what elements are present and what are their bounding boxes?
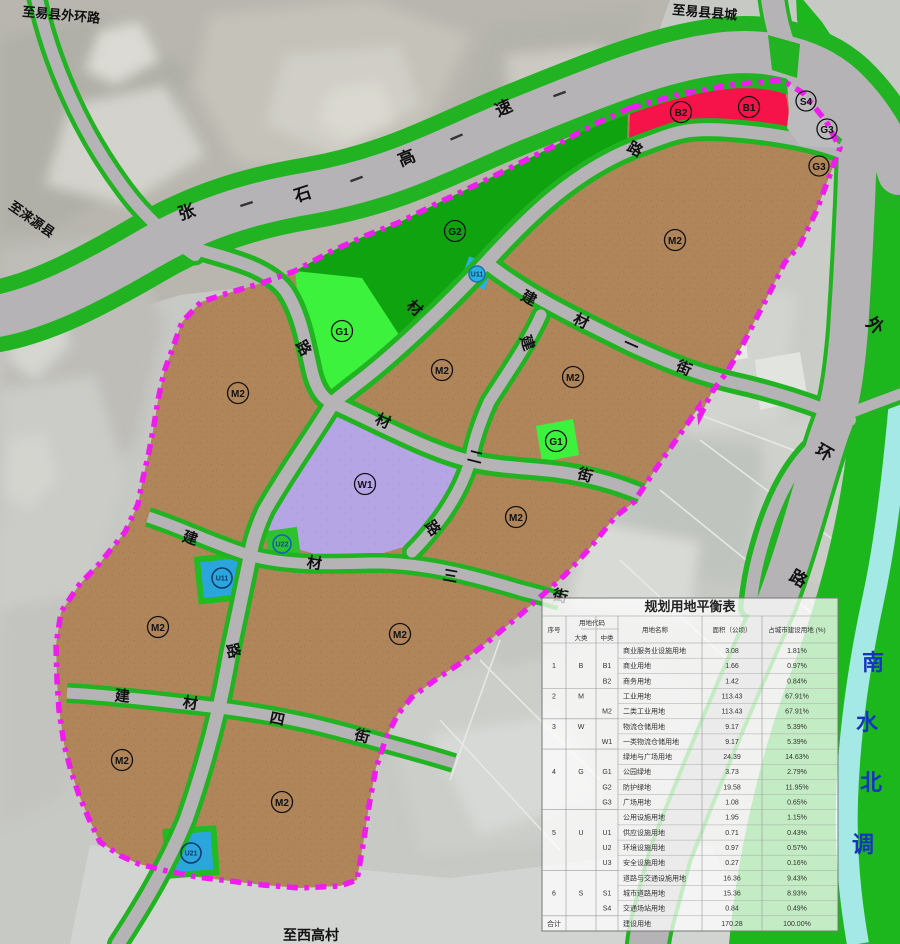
svg-text:占城市建设用地 (%): 占城市建设用地 (%) bbox=[768, 625, 825, 634]
svg-text:S4: S4 bbox=[800, 97, 813, 108]
svg-text:0.97: 0.97 bbox=[725, 845, 739, 852]
svg-text:U11: U11 bbox=[216, 576, 229, 583]
svg-text:物流仓储用地: 物流仓储用地 bbox=[623, 722, 665, 731]
svg-text:水: 水 bbox=[856, 710, 879, 735]
svg-text:公园绿地: 公园绿地 bbox=[623, 767, 651, 776]
svg-text:67.91%: 67.91% bbox=[785, 709, 809, 716]
svg-text:M2: M2 bbox=[275, 798, 289, 809]
svg-text:9.17: 9.17 bbox=[725, 724, 739, 731]
svg-text:南: 南 bbox=[862, 650, 884, 675]
svg-text:0.65%: 0.65% bbox=[787, 800, 807, 807]
svg-text:环境设施用地: 环境设施用地 bbox=[623, 843, 665, 852]
svg-text:序号: 序号 bbox=[548, 625, 562, 634]
svg-text:1.08: 1.08 bbox=[725, 800, 739, 807]
svg-text:24.39: 24.39 bbox=[723, 754, 741, 761]
svg-text:1.95: 1.95 bbox=[725, 815, 739, 822]
svg-text:0.84%: 0.84% bbox=[787, 678, 807, 685]
svg-text:B1: B1 bbox=[603, 663, 612, 670]
svg-text:U1: U1 bbox=[603, 830, 612, 837]
svg-text:M: M bbox=[578, 694, 584, 701]
svg-text:9.17: 9.17 bbox=[725, 739, 739, 746]
svg-text:0.27: 0.27 bbox=[725, 860, 739, 867]
svg-text:1.42: 1.42 bbox=[725, 678, 739, 685]
svg-text:1.66: 1.66 bbox=[725, 663, 739, 670]
svg-text:M2: M2 bbox=[231, 389, 245, 400]
svg-text:G2: G2 bbox=[602, 784, 611, 791]
svg-text:5: 5 bbox=[552, 830, 556, 837]
svg-text:工业用地: 工业用地 bbox=[623, 692, 651, 701]
svg-text:规划用地平衡表: 规划用地平衡表 bbox=[644, 599, 736, 614]
svg-text:5.39%: 5.39% bbox=[787, 739, 807, 746]
svg-text:100.00%: 100.00% bbox=[783, 921, 811, 928]
svg-text:商业用地: 商业用地 bbox=[623, 661, 651, 670]
svg-text:U22: U22 bbox=[276, 542, 289, 549]
svg-text:调: 调 bbox=[852, 832, 874, 857]
svg-text:北: 北 bbox=[860, 770, 882, 795]
svg-text:G1: G1 bbox=[602, 769, 611, 776]
svg-text:二类工业用地: 二类工业用地 bbox=[623, 707, 665, 716]
svg-text:道路与交通设施用地: 道路与交通设施用地 bbox=[623, 873, 686, 882]
svg-text:1.81%: 1.81% bbox=[787, 648, 807, 655]
svg-text:安全设施用地: 安全设施用地 bbox=[623, 858, 665, 867]
svg-text:6: 6 bbox=[552, 891, 556, 898]
svg-text:113.43: 113.43 bbox=[722, 709, 743, 716]
svg-text:用地代码: 用地代码 bbox=[579, 618, 606, 627]
svg-text:0.71: 0.71 bbox=[725, 830, 739, 837]
svg-text:B2: B2 bbox=[675, 108, 688, 119]
svg-text:67.91%: 67.91% bbox=[785, 694, 809, 701]
svg-text:绿地与广场用地: 绿地与广场用地 bbox=[623, 752, 672, 761]
svg-text:B: B bbox=[579, 663, 584, 670]
svg-text:170.28: 170.28 bbox=[721, 921, 743, 928]
svg-text:8.93%: 8.93% bbox=[787, 891, 807, 898]
svg-text:材: 材 bbox=[182, 693, 199, 713]
svg-text:0.49%: 0.49% bbox=[787, 906, 807, 913]
svg-text:G2: G2 bbox=[448, 227, 462, 238]
svg-text:11.95%: 11.95% bbox=[785, 784, 808, 791]
svg-text:15.36: 15.36 bbox=[723, 891, 741, 898]
svg-text:用地名称: 用地名称 bbox=[642, 625, 669, 634]
svg-text:U: U bbox=[578, 830, 583, 837]
svg-text:大类: 大类 bbox=[575, 633, 589, 642]
svg-text:3: 3 bbox=[552, 724, 556, 731]
svg-text:U2: U2 bbox=[603, 845, 612, 852]
svg-text:U3: U3 bbox=[603, 860, 612, 867]
svg-text:M2: M2 bbox=[509, 513, 523, 524]
svg-text:合计: 合计 bbox=[547, 919, 561, 928]
svg-text:M2: M2 bbox=[393, 630, 407, 641]
svg-text:G3: G3 bbox=[602, 800, 611, 807]
svg-text:G3: G3 bbox=[812, 162, 826, 173]
svg-text:建: 建 bbox=[114, 686, 132, 706]
svg-text:S4: S4 bbox=[603, 906, 612, 913]
svg-text:G3: G3 bbox=[820, 125, 834, 136]
svg-text:14.63%: 14.63% bbox=[785, 754, 809, 761]
svg-text:5.39%: 5.39% bbox=[787, 724, 807, 731]
svg-text:U21: U21 bbox=[185, 851, 198, 858]
svg-text:0.43%: 0.43% bbox=[787, 830, 807, 837]
svg-text:广场用地: 广场用地 bbox=[623, 798, 651, 807]
svg-text:供应设施用地: 供应设施用地 bbox=[623, 828, 665, 837]
svg-text:W1: W1 bbox=[602, 739, 613, 746]
svg-text:16.36: 16.36 bbox=[723, 875, 741, 882]
svg-text:0.84: 0.84 bbox=[725, 906, 739, 913]
svg-text:M2: M2 bbox=[151, 623, 165, 634]
svg-text:三: 三 bbox=[441, 567, 459, 586]
svg-text:M2: M2 bbox=[435, 366, 449, 377]
svg-text:113.43: 113.43 bbox=[722, 694, 743, 701]
svg-text:4: 4 bbox=[552, 769, 556, 776]
svg-text:一类物流仓储用地: 一类物流仓储用地 bbox=[623, 737, 679, 746]
svg-text:2.79%: 2.79% bbox=[787, 769, 807, 776]
svg-text:建设用地: 建设用地 bbox=[623, 919, 651, 928]
svg-text:B1: B1 bbox=[743, 103, 756, 114]
svg-text:M2: M2 bbox=[602, 709, 612, 716]
svg-text:M2: M2 bbox=[566, 373, 580, 384]
svg-text:0.97%: 0.97% bbox=[787, 663, 807, 670]
svg-text:0.57%: 0.57% bbox=[787, 845, 807, 852]
svg-text:3.08: 3.08 bbox=[725, 648, 739, 655]
svg-text:M2: M2 bbox=[115, 756, 129, 767]
svg-text:1.15%: 1.15% bbox=[787, 815, 807, 822]
svg-text:U11: U11 bbox=[471, 272, 484, 279]
svg-text:G1: G1 bbox=[335, 327, 349, 338]
svg-text:S1: S1 bbox=[603, 891, 612, 898]
svg-text:M2: M2 bbox=[668, 236, 682, 247]
svg-text:3.73: 3.73 bbox=[725, 769, 739, 776]
svg-text:城市道路用地: 城市道路用地 bbox=[623, 889, 665, 898]
svg-text:中类: 中类 bbox=[601, 633, 615, 642]
svg-text:W: W bbox=[578, 724, 585, 731]
svg-text:G1: G1 bbox=[549, 437, 563, 448]
svg-text:0.16%: 0.16% bbox=[787, 860, 807, 867]
svg-text:材: 材 bbox=[306, 553, 323, 573]
svg-text:S: S bbox=[579, 891, 584, 898]
svg-text:至西高村: 至西高村 bbox=[283, 927, 339, 943]
svg-text:2: 2 bbox=[552, 694, 556, 701]
svg-text:商业服务业设施用地: 商业服务业设施用地 bbox=[623, 646, 686, 655]
svg-text:防护绿地: 防护绿地 bbox=[623, 782, 651, 791]
svg-text:交通场站用地: 交通场站用地 bbox=[623, 904, 665, 913]
svg-text:19.58: 19.58 bbox=[723, 784, 741, 791]
svg-text:公用设施用地: 公用设施用地 bbox=[623, 813, 665, 822]
svg-text:商务用地: 商务用地 bbox=[623, 676, 651, 685]
svg-text:W1: W1 bbox=[358, 480, 373, 491]
svg-text:B2: B2 bbox=[603, 678, 612, 685]
svg-text:9.43%: 9.43% bbox=[787, 875, 807, 882]
svg-text:G: G bbox=[578, 769, 583, 776]
svg-text:1: 1 bbox=[552, 663, 556, 670]
svg-text:面积（公顷）: 面积（公顷） bbox=[713, 625, 752, 634]
